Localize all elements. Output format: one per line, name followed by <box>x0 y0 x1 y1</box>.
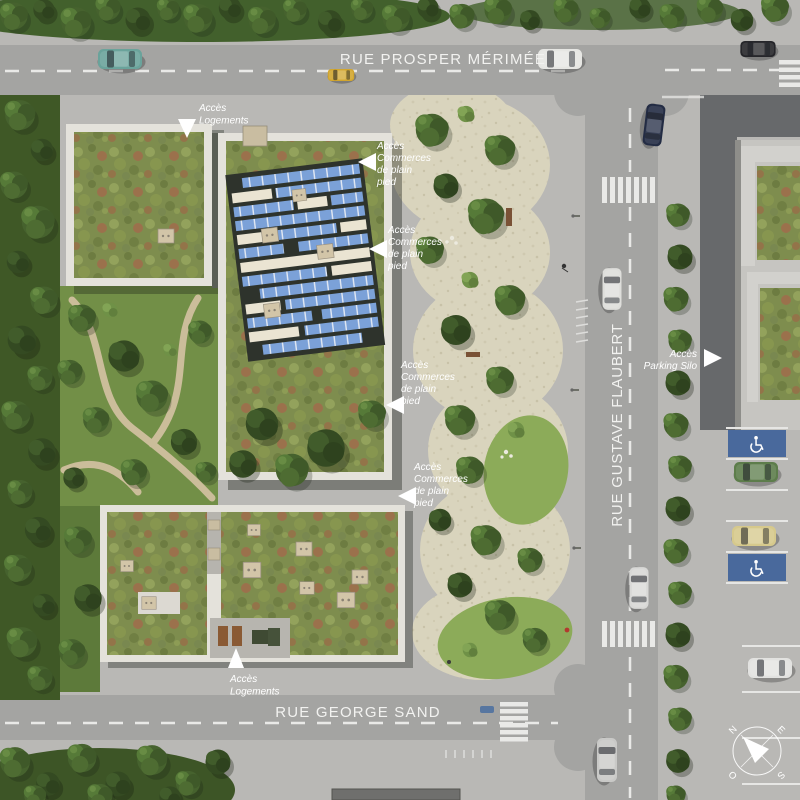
accessible-bay-2 <box>728 554 786 581</box>
silo-green-roof-1 <box>757 166 800 260</box>
solar-array <box>225 158 385 361</box>
car-black <box>740 41 778 61</box>
building-gap-shadow <box>212 133 219 288</box>
car-beige-parked <box>732 526 780 551</box>
bench <box>506 208 512 226</box>
building-parking-silo <box>735 140 800 430</box>
car-yellow <box>328 69 357 84</box>
bench <box>466 352 480 357</box>
bike-lane-marking <box>480 706 494 713</box>
building-top-left <box>66 124 224 294</box>
street-label-george-sand: RUE GEORGE SAND <box>275 704 441 721</box>
green-roof-west <box>107 512 207 655</box>
tree-band-left <box>0 95 61 700</box>
site-plan: RUE PROSPER MÉRIMÉE RUE GUSTAVE FLAUBERT… <box>0 0 800 800</box>
car-green-parked <box>734 462 782 487</box>
car-silver <box>593 738 618 786</box>
canopy <box>332 789 460 800</box>
car-white-flaubert-2 <box>625 567 648 613</box>
building-bottom-complex <box>100 505 413 668</box>
green-roof <box>74 132 204 278</box>
car-white-parked <box>748 658 796 683</box>
building-main <box>218 126 402 492</box>
car-teal <box>98 49 146 74</box>
roof-access-box <box>243 126 267 146</box>
street-label-gustave-flaubert: RUE GUSTAVE FLAUBERT <box>609 323 626 527</box>
street-label-prosper-merimee: RUE PROSPER MÉRIMÉE <box>340 51 546 68</box>
car-white-flaubert-1 <box>598 268 621 314</box>
accessible-bay-1 <box>728 430 786 457</box>
silo-green-roof-2 <box>760 288 800 400</box>
